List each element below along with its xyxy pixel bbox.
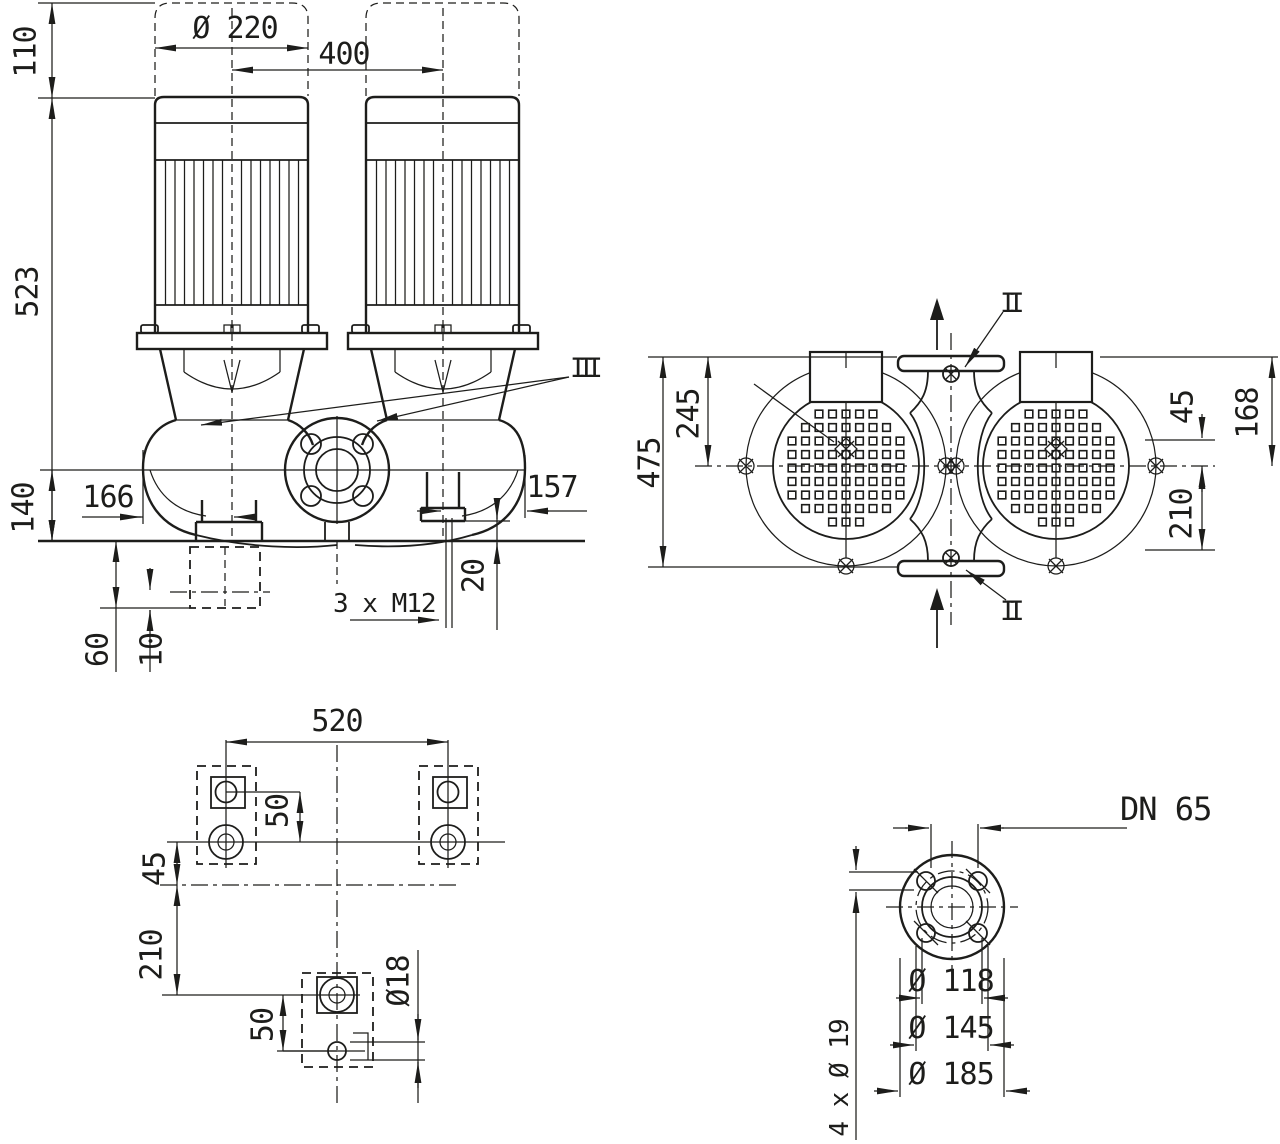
dim-dia145: Ø 145 xyxy=(908,1011,993,1046)
dim-45-plan: 45 xyxy=(138,852,173,886)
dim-dia220: Ø 220 xyxy=(192,11,277,46)
front-dimensions xyxy=(38,3,587,672)
dim-45-top: 45 xyxy=(1166,390,1201,424)
dim-60: 60 xyxy=(81,633,116,667)
dim-166: 166 xyxy=(82,480,133,515)
foundation-plan-view: 520 50 45 210 50 Ø18 xyxy=(135,704,506,1105)
section-mark-II-top: II xyxy=(1000,288,1022,319)
top-view: 475 245 45 168 210 II II xyxy=(633,288,1279,648)
drawing-canvas: 110 523 140 Ø 220 400 166 157 20 3 x M12… xyxy=(0,0,1280,1144)
foundation-pad xyxy=(100,547,270,608)
dim-dia185: Ø 185 xyxy=(908,1057,993,1092)
dim-400: 400 xyxy=(318,37,369,72)
dim-dn65: DN 65 xyxy=(1120,790,1211,828)
flange-detail-view: DN 65 Ø 118 Ø 145 Ø 185 4 x Ø 19 xyxy=(825,790,1211,1140)
foot-bottom xyxy=(277,973,373,1067)
dim-245: 245 xyxy=(672,388,707,439)
dim-20: 20 xyxy=(457,559,492,593)
dim-10: 10 xyxy=(135,633,170,667)
dim-4xdia19: 4 x Ø 19 xyxy=(825,1019,855,1136)
dim-475: 475 xyxy=(633,437,668,488)
dim-110: 110 xyxy=(9,26,44,77)
dim-dia118: Ø 118 xyxy=(908,964,993,999)
dim-140: 140 xyxy=(7,482,42,533)
front-elevation-view: 110 523 140 Ø 220 400 166 157 20 3 x M12… xyxy=(7,3,601,672)
note-3xM12: 3 x M12 xyxy=(333,589,436,619)
flow-arrow-up-top xyxy=(930,298,944,350)
flow-arrow-up-bottom xyxy=(930,588,944,648)
dim-210-plan: 210 xyxy=(135,929,170,980)
dim-210-top: 210 xyxy=(1165,488,1200,539)
section-mark-III: III xyxy=(570,353,601,384)
dim-168: 168 xyxy=(1231,387,1266,438)
plan-dimensions xyxy=(177,742,448,1103)
dim-50-top: 50 xyxy=(261,794,296,828)
dim-520: 520 xyxy=(311,704,362,739)
dim-523: 523 xyxy=(11,266,46,317)
dim-50-bottom: 50 xyxy=(246,1008,281,1042)
dim-dia18: Ø18 xyxy=(382,955,417,1006)
pump-dimensional-drawing: 110 523 140 Ø 220 400 166 157 20 3 x M12… xyxy=(0,0,1280,1144)
section-mark-II-bottom: II xyxy=(1000,596,1022,627)
dim-157: 157 xyxy=(526,470,577,505)
motor-cooling-fins xyxy=(166,160,510,305)
